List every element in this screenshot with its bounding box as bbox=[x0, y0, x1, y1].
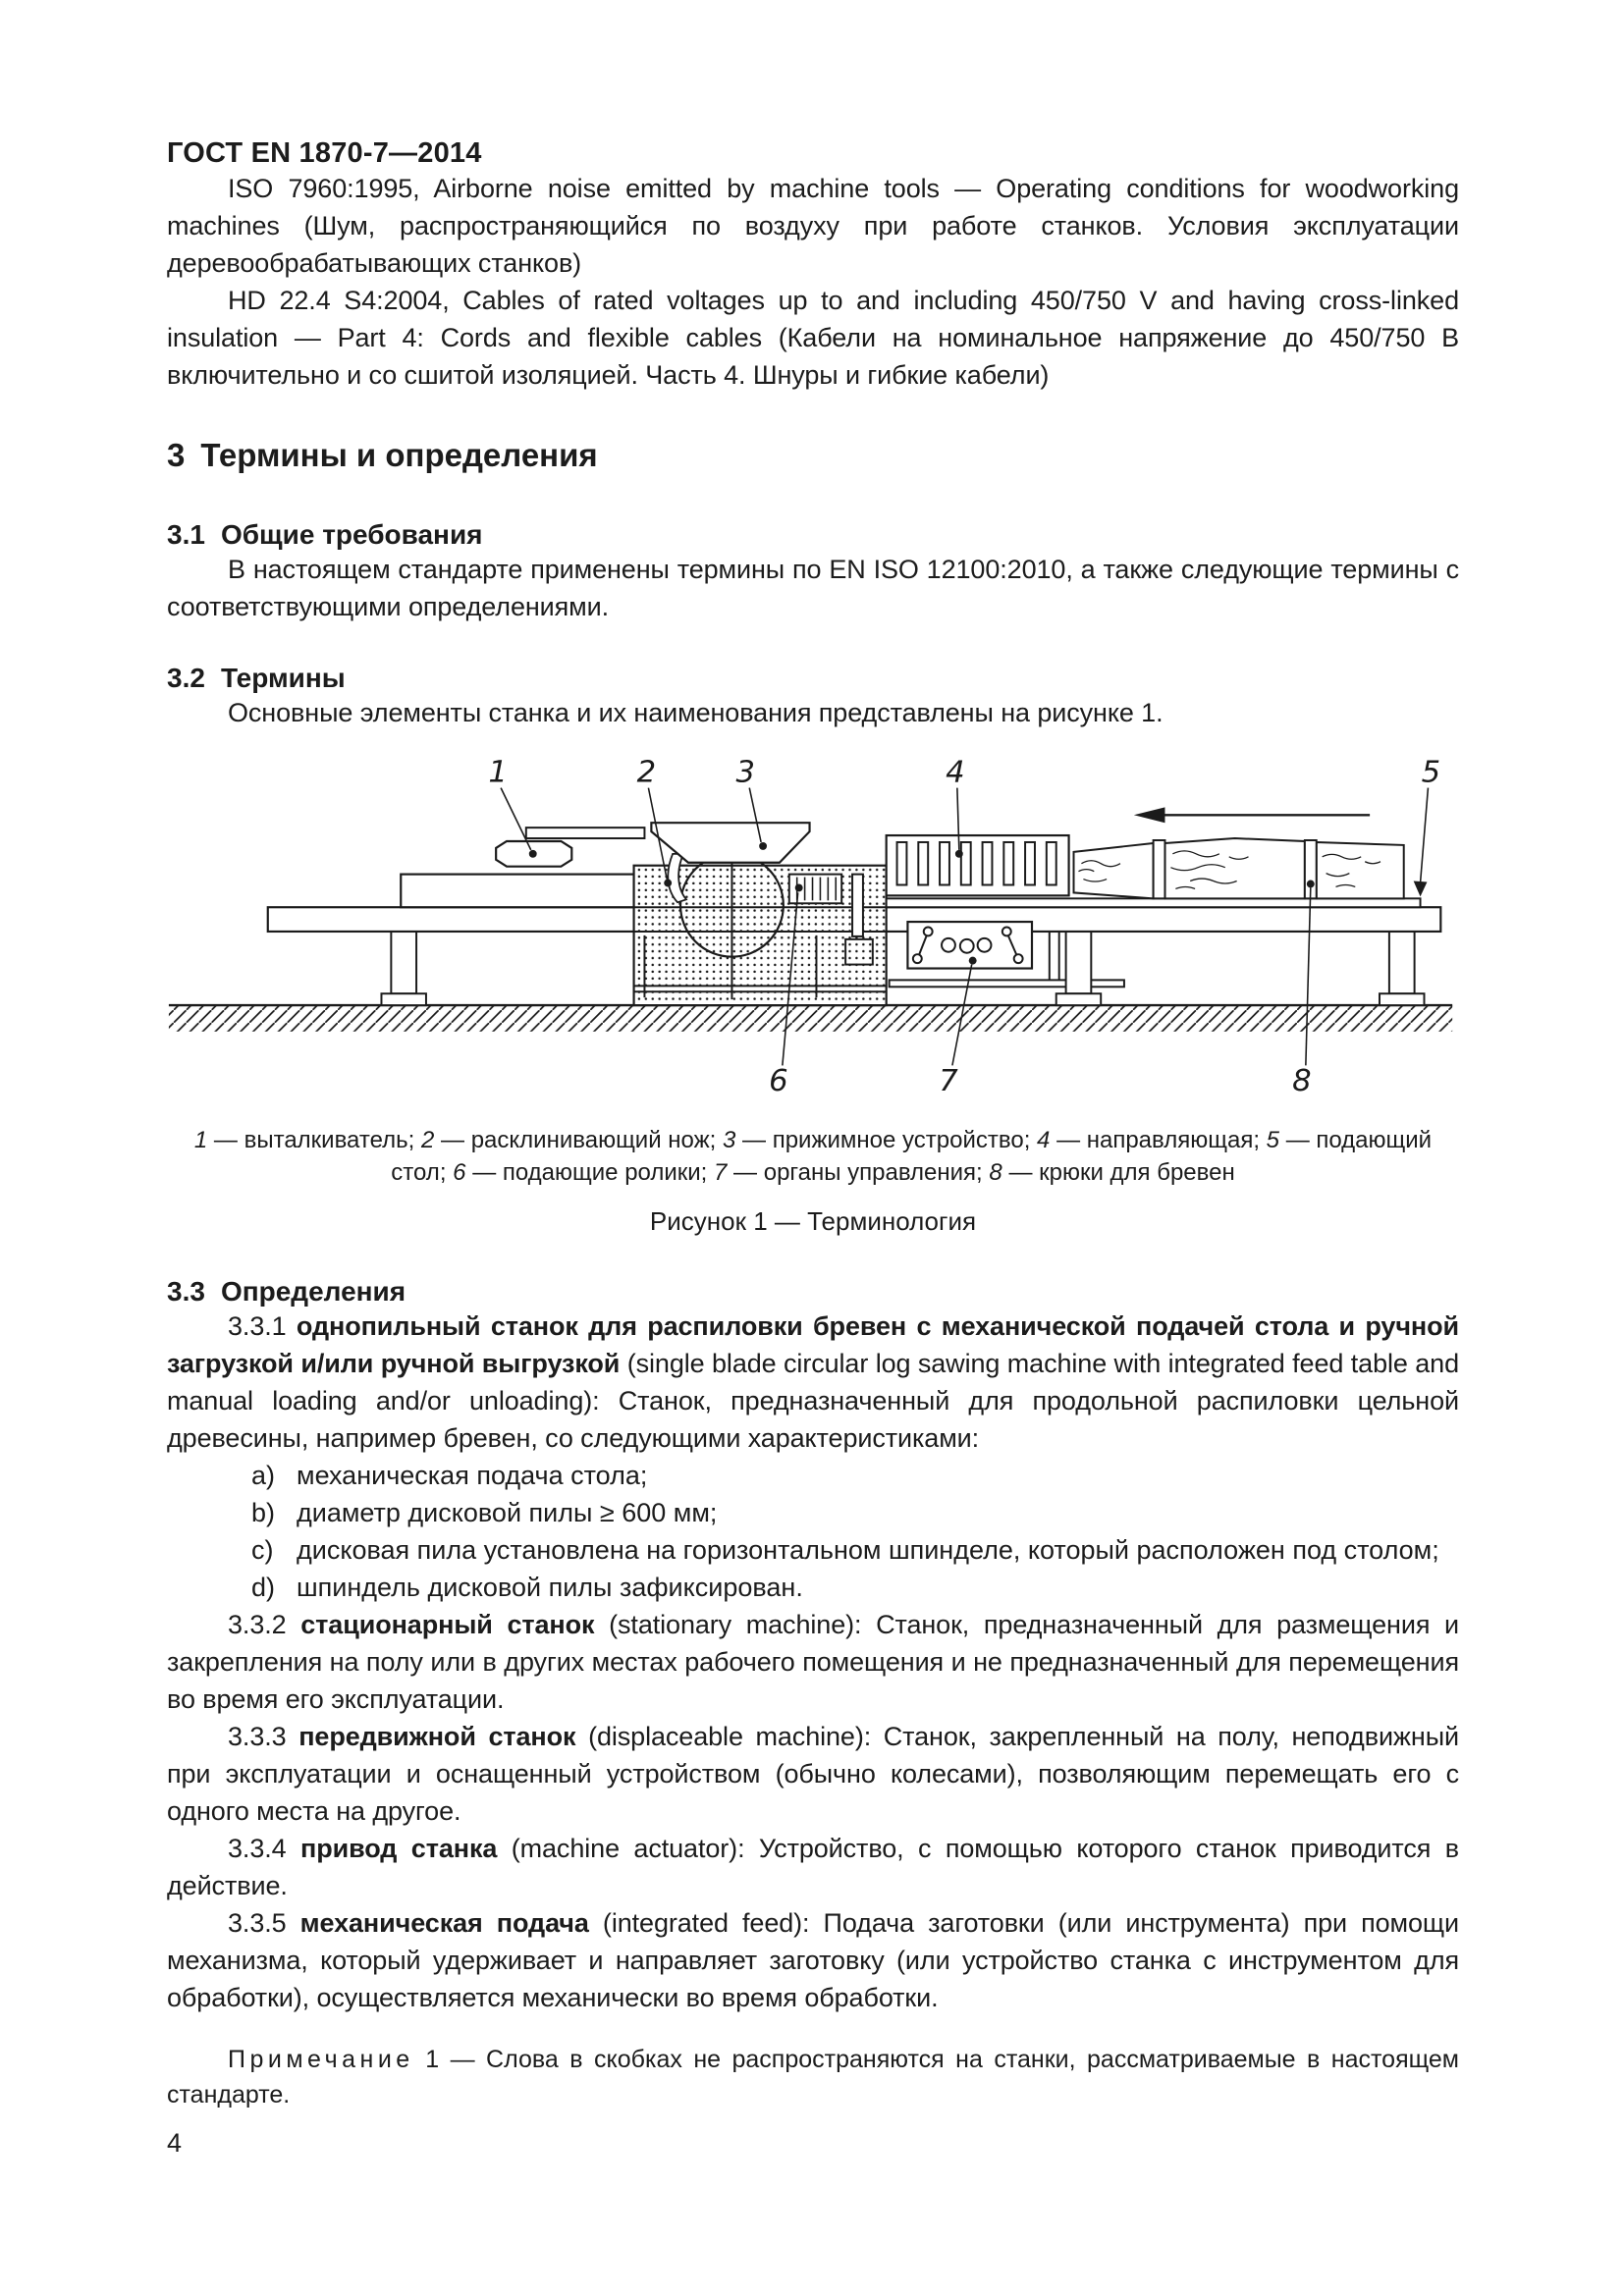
section-3-1-paragraph: В настоящем стандарте применены термины … bbox=[167, 551, 1459, 625]
legend-text: — прижимное устройство; bbox=[742, 1127, 1030, 1153]
definition-3-3-3: 3.3.3 передвижной станок (displaceable m… bbox=[167, 1718, 1459, 1830]
definition-3-3-5: 3.3.5 механическая подача (integrated fe… bbox=[167, 1904, 1459, 2016]
definition-3-3-2: 3.3.2 стационарный станок (stationary ma… bbox=[167, 1606, 1459, 1718]
characteristic-item-c: c)дисковая пила установлена на горизонта… bbox=[167, 1531, 1459, 1569]
outfeed-platform bbox=[401, 875, 633, 908]
legend-text: — направляющая; bbox=[1056, 1127, 1260, 1153]
list-label: a) bbox=[251, 1457, 297, 1494]
characteristic-item-d: d)шпиндель дисковой пилы зафиксирован. bbox=[167, 1569, 1459, 1606]
characteristic-item-a: a)механическая подача стола; bbox=[167, 1457, 1459, 1494]
definition-number: 3.3.3 bbox=[228, 1722, 287, 1751]
figure-caption: Рисунок 1 — Терминология bbox=[167, 1206, 1459, 1237]
machine-leg bbox=[381, 932, 425, 1005]
legend-text: — выталкиватель; bbox=[214, 1127, 414, 1153]
section-title: Определения bbox=[221, 1276, 406, 1307]
figure-1: 1 2 3 4 5 6 7 8 bbox=[161, 745, 1459, 1114]
feed-direction-arrow bbox=[1134, 807, 1370, 823]
definition-number: 3.3.2 bbox=[228, 1610, 287, 1639]
legend-number: 8 bbox=[989, 1159, 1001, 1186]
reference-paragraph-hd: HD 22.4 S4:2004, Cables of rated voltage… bbox=[167, 282, 1459, 394]
section-3-1-heading: 3.1Общие требования bbox=[167, 519, 1459, 551]
figure-callout-4: 4 bbox=[946, 756, 964, 790]
definition-3-3-1: 3.3.1 однопильный станок для распиловки … bbox=[167, 1308, 1459, 1457]
figure-callout-3: 3 bbox=[736, 756, 756, 790]
list-text: механическая подача стола; bbox=[297, 1461, 647, 1490]
section-3-2-heading: 3.2Термины bbox=[167, 663, 1459, 694]
definition-term: механическая подача bbox=[300, 1908, 589, 1938]
list-text: дисковая пила установлена на горизонталь… bbox=[297, 1535, 1439, 1565]
machine-leg bbox=[1380, 932, 1424, 1005]
definition-number: 3.3.1 bbox=[228, 1311, 287, 1341]
section-number: 3 bbox=[167, 437, 185, 474]
machine-leg bbox=[1056, 932, 1101, 1005]
section-number: 3.3 bbox=[167, 1276, 205, 1308]
figure-callout-7: 7 bbox=[939, 1064, 958, 1098]
note-label: Примечание bbox=[228, 2046, 414, 2073]
definition-term: привод станка bbox=[300, 1834, 497, 1863]
figure-callout-8: 8 bbox=[1292, 1064, 1312, 1098]
section-title: Общие требования bbox=[221, 519, 483, 550]
definition-term: стационарный станок bbox=[300, 1610, 594, 1639]
feed-table-surface bbox=[887, 898, 1421, 907]
definition-3-3-4: 3.3.4 привод станка (machine actuator): … bbox=[167, 1830, 1459, 1904]
definition-term: передвижной станок bbox=[298, 1722, 575, 1751]
section-title: Термины и определения bbox=[200, 437, 597, 473]
note-paragraph: Примечание 1 — Слова в скобках не распро… bbox=[167, 2042, 1459, 2112]
page-content: ГОСТ EN 1870-7—2014 ISO 7960:1995, Airbo… bbox=[0, 0, 1624, 2159]
list-label: d) bbox=[251, 1569, 297, 1606]
top-bar bbox=[526, 828, 645, 838]
legend-text: — органы управления; bbox=[733, 1159, 983, 1186]
list-label: c) bbox=[251, 1531, 297, 1569]
legend-number: 1 bbox=[194, 1127, 207, 1153]
section-3-3-heading: 3.3Определения bbox=[167, 1276, 1459, 1308]
note-number: 1 bbox=[425, 2046, 439, 2073]
definition-number: 3.3.5 bbox=[228, 1908, 287, 1938]
figure-callout-2: 2 bbox=[637, 756, 657, 790]
log-hook-post bbox=[1154, 840, 1165, 898]
list-text: шпиндель дисковой пилы зафиксирован. bbox=[297, 1573, 803, 1602]
ground-hatch bbox=[169, 1005, 1452, 1032]
legend-text: — расклинивающий нож; bbox=[441, 1127, 716, 1153]
section-title: Термины bbox=[221, 663, 346, 693]
log-stack bbox=[1074, 838, 1404, 898]
characteristic-item-b: b)диаметр дисковой пилы ≥ 600 мм; bbox=[167, 1494, 1459, 1531]
legend-number: 6 bbox=[453, 1159, 465, 1186]
section-3-heading: 3Термины и определения bbox=[167, 437, 1459, 474]
legend-number: 2 bbox=[421, 1127, 434, 1153]
guide-grille bbox=[887, 835, 1069, 895]
list-label: b) bbox=[251, 1494, 297, 1531]
section-number: 3.1 bbox=[167, 519, 205, 551]
list-text: диаметр дисковой пилы ≥ 600 мм; bbox=[297, 1498, 717, 1527]
legend-number: 4 bbox=[1037, 1127, 1050, 1153]
figure-diagram: 1 2 3 4 5 6 7 8 bbox=[161, 745, 1467, 1109]
page-number: 4 bbox=[167, 2128, 1459, 2159]
figure-callout-5: 5 bbox=[1422, 756, 1441, 790]
reference-paragraph-iso: ISO 7960:1995, Airborne noise emitted by… bbox=[167, 170, 1459, 282]
figure-callout-6: 6 bbox=[769, 1064, 788, 1098]
figure-callout-1: 1 bbox=[488, 756, 508, 790]
legend-number: 5 bbox=[1267, 1127, 1279, 1153]
legend-number: 3 bbox=[723, 1127, 735, 1153]
section-number: 3.2 bbox=[167, 663, 205, 694]
figure-legend: 1 — выталкиватель; 2 — расклинивающий но… bbox=[180, 1124, 1446, 1189]
document-page: ГОСТ EN 1870-7—2014 ISO 7960:1995, Airbo… bbox=[0, 0, 1624, 2296]
legend-number: 7 bbox=[714, 1159, 727, 1186]
section-3-2-paragraph: Основные элементы станка и их наименован… bbox=[167, 694, 1459, 731]
legend-text: — подающие ролики; bbox=[472, 1159, 707, 1186]
legend-text: — крюки для бревен bbox=[1008, 1159, 1234, 1186]
definition-number: 3.3.4 bbox=[228, 1834, 287, 1863]
document-header: ГОСТ EN 1870-7—2014 bbox=[167, 137, 1459, 170]
